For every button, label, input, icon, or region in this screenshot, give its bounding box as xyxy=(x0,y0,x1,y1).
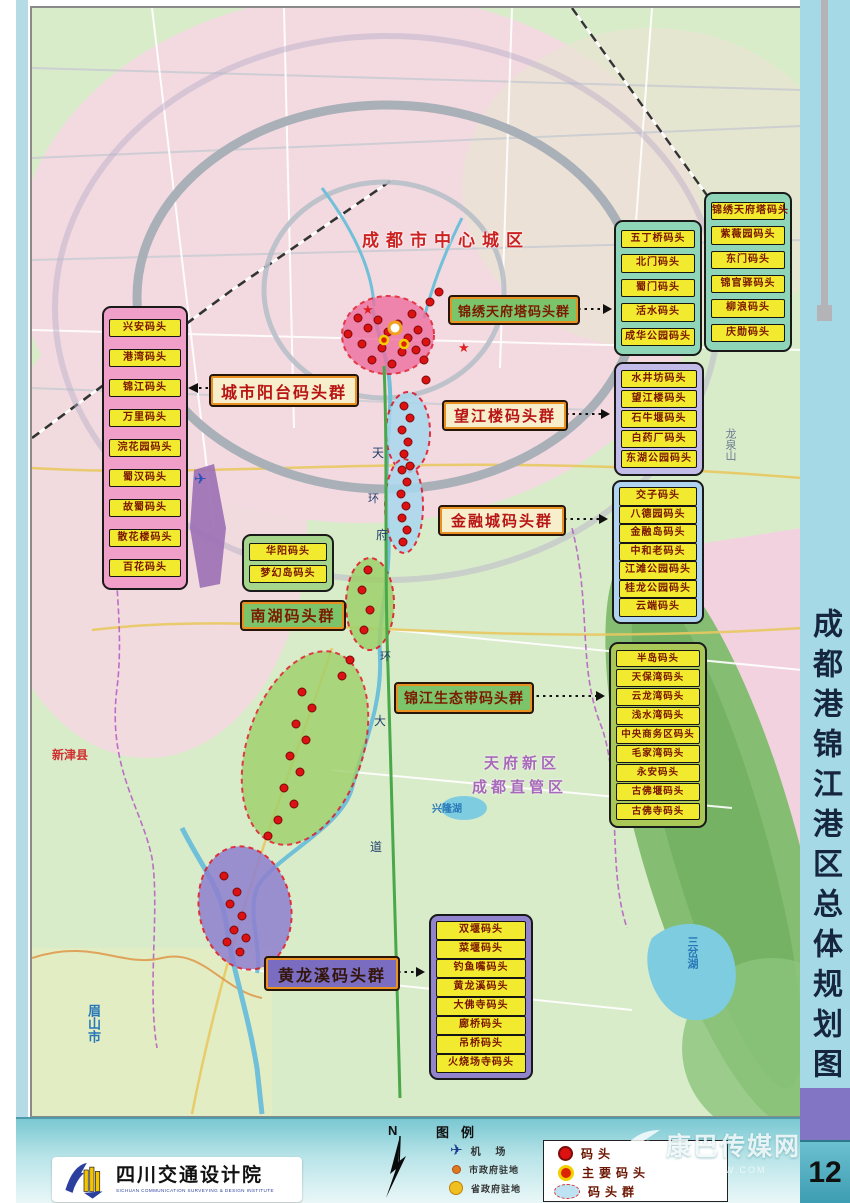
dock-dot xyxy=(358,586,366,594)
dock-dot xyxy=(346,656,354,664)
dock-label: 半岛码头 xyxy=(616,650,700,668)
legend-label-airport: 机 场 xyxy=(471,1143,512,1158)
legend-label-city-gov: 市政府驻地 xyxy=(469,1163,519,1176)
dock-list-wangjiang: 水井坊码头望江楼码头石牛堰码头白药厂码头东湖公园码头 xyxy=(614,362,704,476)
label-avenue-char-3: 大 xyxy=(374,712,386,729)
label-meishan: 眉山市 xyxy=(84,1004,103,1043)
dock-label: 古佛寺码头 xyxy=(616,803,700,821)
province-gov-dot xyxy=(389,322,401,334)
dock-label: 钓鱼嘴码头 xyxy=(436,959,526,978)
dock-label: 吊桥码头 xyxy=(436,1035,526,1054)
dock-label: 双堰码头 xyxy=(436,921,526,940)
city-gov-dot xyxy=(452,1165,461,1174)
dock-dot xyxy=(220,872,228,880)
dock-dot xyxy=(420,356,428,364)
dock-label: 金融岛码头 xyxy=(619,524,697,543)
dock-label: 港湾码头 xyxy=(109,349,181,368)
dock-dot xyxy=(399,538,407,546)
label-xinglong-lake: 兴隆湖 xyxy=(432,800,462,815)
dock-dot xyxy=(364,324,372,332)
group-label-wangjiang: 望江楼码头群 xyxy=(442,400,568,431)
label-tianfu-subarea: 成都直管区 xyxy=(472,776,567,797)
dock-dot xyxy=(364,566,372,574)
dock-dot xyxy=(298,688,306,696)
airport-plane-icon: ✈ xyxy=(194,470,207,488)
dock-dot xyxy=(286,752,294,760)
watermark-text: 康巴传媒网 xyxy=(666,1127,801,1163)
dock-dot xyxy=(403,478,411,486)
label-avenue-char-1: 天 xyxy=(372,444,384,461)
dock-dot xyxy=(378,344,386,352)
label-center-city: 成都市中心城区 xyxy=(362,226,530,251)
dock-dot xyxy=(435,288,443,296)
group-label-eco-belt: 锦江生态带码头群 xyxy=(394,682,534,714)
dock-dot xyxy=(400,450,408,458)
dock-label: 锦江码头 xyxy=(109,379,181,398)
page-title: 成都港锦江港区总体规划图 xyxy=(804,598,846,1098)
dock-dot xyxy=(388,360,396,368)
dock-label: 活水码头 xyxy=(621,303,695,322)
dock-dot xyxy=(242,934,250,942)
dock-dot xyxy=(403,526,411,534)
dock-dot xyxy=(230,926,238,934)
group-label-financial: 金融城码头群 xyxy=(438,505,566,536)
dock-label: 紫薇园码头 xyxy=(711,226,785,245)
dock-label: 兴安码头 xyxy=(109,319,181,338)
dock-label: 火烧场寺码头 xyxy=(436,1054,526,1073)
dock-label: 江滩公园码头 xyxy=(619,561,697,580)
dock-label: 中央商务区码头 xyxy=(616,726,700,744)
dock-list-financial: 交子码头八德园码头金融岛码头中和老码头江滩公园码头桂龙公园码头云端码头 xyxy=(612,480,704,624)
label-xinjin: 新津县 xyxy=(52,746,88,763)
dock-label: 梦幻岛码头 xyxy=(249,565,327,584)
dock-dot xyxy=(398,348,406,356)
group-label-huanglongxi: 黄龙溪码头群 xyxy=(264,956,400,991)
dock-dot-icon xyxy=(558,1146,573,1161)
legend-row-city-gov: 市政府驻地 xyxy=(452,1163,519,1176)
dock-dot xyxy=(398,466,406,474)
dock-label: 故蜀码头 xyxy=(109,499,181,518)
institute-name-en: SICHUAN COMMUNICATION SURVEYING & DESIGN… xyxy=(116,1188,274,1193)
dock-dot xyxy=(226,900,234,908)
dock-label: 浣花园码头 xyxy=(109,439,181,458)
dock-label: 成华公园码头 xyxy=(621,328,695,347)
dock-label: 北门码头 xyxy=(621,254,695,273)
dock-dot xyxy=(422,376,430,384)
dock-label: 中和老码头 xyxy=(619,543,697,562)
dock-dot xyxy=(233,888,241,896)
dock-dot xyxy=(366,606,374,614)
dock-dot xyxy=(238,912,246,920)
legend-title: 图例 xyxy=(436,1122,486,1141)
dock-label: 庆勋码头 xyxy=(711,324,785,343)
dock-dot xyxy=(264,832,272,840)
dock-label: 云端码头 xyxy=(619,598,697,617)
label-tianfu-new-area: 天府新区 xyxy=(484,752,560,773)
dock-label: 天保湾码头 xyxy=(616,669,700,687)
dock-label: 云龙湾码头 xyxy=(616,688,700,706)
dock-list-city-balcony: 兴安码头港湾码头锦江码头万里码头浣花园码头蜀汉码头故蜀码头散花楼码头百花码头 xyxy=(102,306,188,590)
dock-dot xyxy=(426,298,434,306)
dock-label: 五丁桥码头 xyxy=(621,230,695,249)
label-longquan: 龙泉山 xyxy=(722,428,738,461)
institute-logo-box: 四川交通设计院 SICHUAN COMMUNICATION SURVEYING … xyxy=(52,1157,302,1202)
dock-dot xyxy=(406,414,414,422)
dock-label: 万里码头 xyxy=(109,409,181,428)
dock-dot xyxy=(398,514,406,522)
decor-line xyxy=(821,0,828,305)
dock-dot xyxy=(400,402,408,410)
right-title-strip: 成都港锦江港区总体规划图 12 xyxy=(800,0,850,1203)
purple-accent-block xyxy=(800,1088,850,1140)
legend-label-province-gov: 省政府驻地 xyxy=(471,1182,521,1195)
dock-dot xyxy=(344,330,352,338)
dock-dot xyxy=(354,314,362,322)
legend-row-dock: 码头 xyxy=(558,1145,615,1162)
dock-label: 柳浪码头 xyxy=(711,299,785,318)
dock-label: 菜堰码头 xyxy=(436,940,526,959)
map-area: 兴安码头港湾码头锦江码头万里码头浣花园码头蜀汉码头故蜀码头散花楼码头百花码头 五… xyxy=(30,6,804,1118)
dock-label: 浅水湾码头 xyxy=(616,707,700,725)
dock-label: 交子码头 xyxy=(619,487,697,506)
dock-dot xyxy=(422,338,430,346)
group-label-jinxiu-tower: 锦绣天府塔码头群 xyxy=(448,295,580,325)
dock-label: 百花码头 xyxy=(109,559,181,578)
dock-dot xyxy=(360,626,368,634)
gov-star-icon: ★ xyxy=(362,302,374,318)
dock-label: 大佛寺码头 xyxy=(436,997,526,1016)
dock-label: 八德园码头 xyxy=(619,506,697,525)
dock-dot xyxy=(290,800,298,808)
main-dock-dot-icon xyxy=(558,1165,574,1181)
dock-label: 永安码头 xyxy=(616,764,700,782)
legend-row-dock-cluster: 码头群 xyxy=(554,1183,639,1200)
dock-label: 水井坊码头 xyxy=(621,370,697,389)
dock-label: 东湖公园码头 xyxy=(621,450,697,469)
dock-dot xyxy=(368,356,376,364)
airplane-icon: ✈ xyxy=(450,1141,463,1159)
dock-dot xyxy=(404,438,412,446)
dock-label: 石牛堰码头 xyxy=(621,410,697,429)
dock-dot xyxy=(223,938,231,946)
dock-cluster-ellipse-icon xyxy=(554,1184,580,1199)
dock-label: 东门码头 xyxy=(711,251,785,270)
label-ring-road-1: 环 xyxy=(368,490,379,506)
decor-line-cap xyxy=(817,305,832,321)
dock-label: 白药厂码头 xyxy=(621,430,697,449)
dock-label: 廊桥码头 xyxy=(436,1016,526,1035)
label-ring-road-2: 环 xyxy=(380,648,391,664)
dock-dot xyxy=(296,768,304,776)
dock-dot xyxy=(358,340,366,348)
dock-list-jinxiu-right: 锦绣天府塔码头紫薇园码头东门码头锦官驿码头柳浪码头庆勋码头 xyxy=(704,192,792,352)
dock-label: 古佛堰码头 xyxy=(616,783,700,801)
institute-logo-icon xyxy=(60,1160,108,1200)
dock-dot xyxy=(280,784,288,792)
dock-dot xyxy=(402,502,410,510)
group-label-south-lake: 南湖码头群 xyxy=(240,600,346,631)
dock-label: 蜀汉码头 xyxy=(109,469,181,488)
footer-bar: 图例 N ✈ 机 场 市政府驻地 省政府驻地 码头 主要码头 xyxy=(16,1117,800,1203)
label-avenue-char-4: 道 xyxy=(370,838,382,855)
watermark: 康巴传媒网 WWW.KBCMW.COM xyxy=(616,1127,806,1175)
label-sancha-lake: 三岔湖 xyxy=(684,936,700,969)
dock-dot xyxy=(406,462,414,470)
dock-label: 望江楼码头 xyxy=(621,390,697,409)
dock-label: 桂龙公园码头 xyxy=(619,580,697,599)
main-dock-dot xyxy=(400,340,408,348)
dock-list-jinxiu-left: 五丁桥码头北门码头蜀门码头活水码头成华公园码头 xyxy=(614,220,702,356)
legend-row-airport: ✈ 机 场 xyxy=(450,1141,511,1159)
watermark-url: WWW.KBCMW.COM xyxy=(616,1165,806,1175)
dock-list-eco-belt: 半岛码头天保湾码头云龙湾码头浅水湾码头中央商务区码头毛家湾码头永安码头古佛堰码头… xyxy=(609,642,707,828)
dock-label: 黄龙溪码头 xyxy=(436,978,526,997)
dock-dot xyxy=(292,720,300,728)
main-dock-dot xyxy=(380,336,388,344)
dock-dot xyxy=(397,490,405,498)
gov-star-icon-2: ★ xyxy=(458,340,470,356)
watermark-logo-icon xyxy=(616,1128,662,1162)
north-arrow-icon xyxy=(380,1136,418,1200)
dock-label: 锦官驿码头 xyxy=(711,275,785,294)
province-gov-dot xyxy=(449,1181,463,1195)
dock-dot xyxy=(274,816,282,824)
dock-label: 毛家湾码头 xyxy=(616,745,700,763)
dock-dot xyxy=(338,672,346,680)
dock-dot xyxy=(374,316,382,324)
legend-row-province-gov: 省政府驻地 xyxy=(449,1181,521,1195)
dock-dot xyxy=(308,704,316,712)
dock-dot xyxy=(398,426,406,434)
dock-dot xyxy=(412,346,420,354)
group-label-city-balcony: 城市阳台码头群 xyxy=(209,374,359,407)
planning-map-page: 兴安码头港湾码头锦江码头万里码头浣花园码头蜀汉码头故蜀码头散花楼码头百花码头 五… xyxy=(0,0,850,1203)
dock-dot xyxy=(414,326,422,334)
left-margin-strip xyxy=(16,0,28,1203)
legend-label-dock-cluster: 码头群 xyxy=(588,1183,639,1200)
dock-list-huanglongxi: 双堰码头菜堰码头钓鱼嘴码头黄龙溪码头大佛寺码头廊桥码头吊桥码头火烧场寺码头 xyxy=(429,914,533,1080)
dock-list-south-lake: 华阳码头梦幻岛码头 xyxy=(242,534,334,592)
dock-dot xyxy=(408,310,416,318)
dock-label: 蜀门码头 xyxy=(621,279,695,298)
dock-dot xyxy=(236,948,244,956)
page-number: 12 xyxy=(800,1140,850,1203)
label-avenue-char-2: 府 xyxy=(376,526,388,543)
dock-dot xyxy=(302,736,310,744)
dock-label: 锦绣天府塔码头 xyxy=(711,202,785,221)
institute-name-cn: 四川交通设计院 xyxy=(116,1166,274,1185)
legend-label-dock: 码头 xyxy=(581,1145,615,1162)
dock-label: 华阳码头 xyxy=(249,543,327,562)
dock-label: 散花楼码头 xyxy=(109,529,181,548)
